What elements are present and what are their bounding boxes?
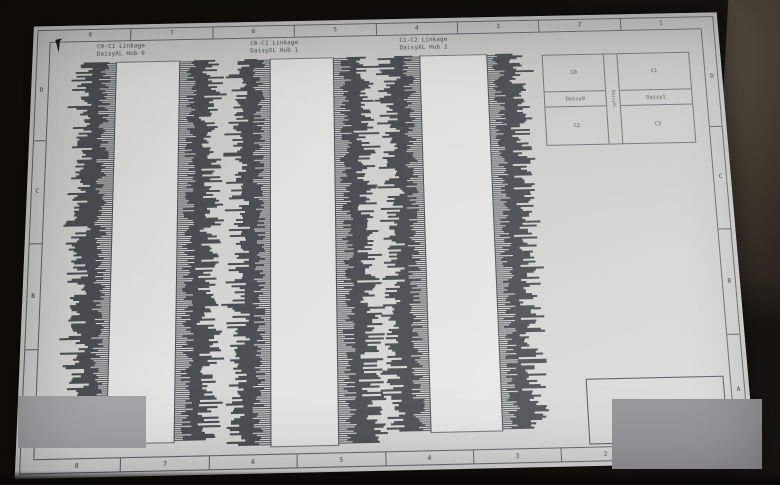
redaction-overlay-right <box>612 399 762 469</box>
hub-label-left: Daisy0 <box>545 90 607 107</box>
connector-body <box>106 61 180 445</box>
linkage-block-0: C0-C1 LinkageDaisyXL Hub 0 <box>51 41 230 446</box>
connector-cell-c0: C0 <box>543 55 605 92</box>
connector-cell-c1: C1 <box>617 53 691 90</box>
ruler-bottom-cell-3: 3 <box>473 448 562 464</box>
connector-body <box>270 57 340 447</box>
tablet-bezel-bottom <box>0 471 780 485</box>
ruler-bottom-cell-5: 5 <box>297 452 385 468</box>
ruler-bottom-cell-6: 6 <box>208 454 296 470</box>
connector-map-col-right: C1 Daisy1 C3 <box>617 53 695 144</box>
connector-cell-c2: C2 <box>545 106 608 145</box>
linkage-block-2: C1-C2 LinkageDaisyXL Hub 2 <box>368 35 557 435</box>
pin-column-left <box>216 59 270 449</box>
connector-cell-c3: C3 <box>621 104 695 143</box>
linkage-block-1: C0-C1 LinkageDaisyXL Hub 1 <box>216 38 393 449</box>
hub-label-right: Daisy1 <box>620 88 693 106</box>
hub-label-vertical: DaisyXL <box>610 90 616 108</box>
connector-map-table: C0 Daisy0 C2 DaisyXL C1 Daisy1 C3 <box>542 52 697 146</box>
ruler-bottom-cell-7: 7 <box>120 456 209 472</box>
redaction-overlay-left <box>18 396 146 448</box>
photo-background: 87654321 87654321 DCBA DCBA C0-C1 Linkag… <box>0 0 780 485</box>
connector-map-col-left: C0 Daisy0 C2 <box>543 54 610 144</box>
ruler-bottom-cell-4: 4 <box>385 450 474 466</box>
